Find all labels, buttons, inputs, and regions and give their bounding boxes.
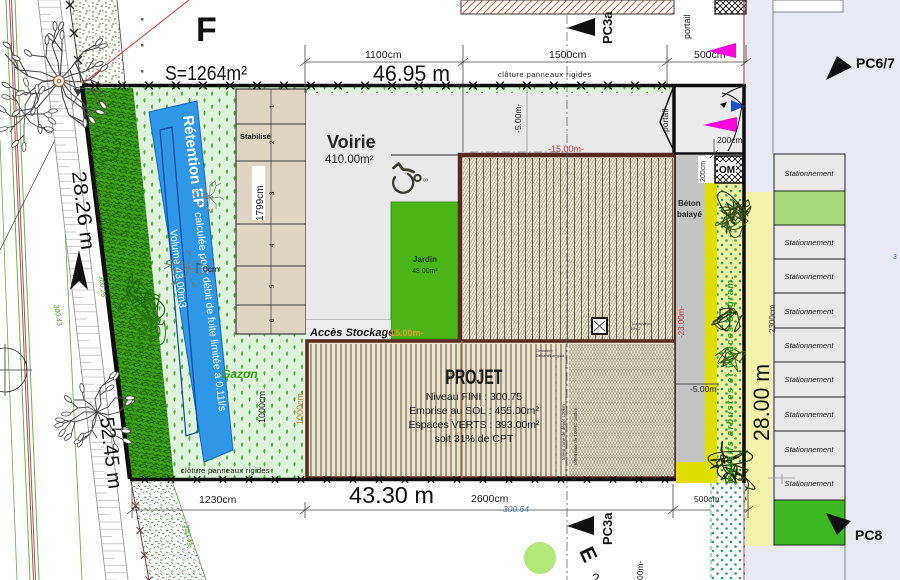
svg-text:Espaces VERTS : 393.00m²: Espaces VERTS : 393.00m²: [408, 419, 540, 431]
svg-text:Stabilisé: Stabilisé: [240, 132, 271, 141]
svg-text:Gazon: Gazon: [221, 367, 258, 381]
svg-text:Stationnement: Stationnement: [785, 169, 835, 178]
svg-text:1000cm: 1000cm: [257, 391, 267, 423]
svg-text:PC3a: PC3a: [600, 11, 615, 44]
svg-text:PC6/7: PC6/7: [856, 55, 895, 71]
svg-text:3: 3: [893, 254, 897, 261]
svg-text:300.64: 300.64: [503, 504, 529, 514]
svg-text:Stationnement: Stationnement: [785, 375, 835, 384]
svg-text:totem haie de 100HC 150km: totem haie de 100HC 150km: [573, 407, 578, 465]
svg-text:Stationnement: Stationnement: [785, 307, 835, 316]
svg-text:-15.00m-: -15.00m-: [387, 328, 424, 338]
svg-text:totem zone de dépôt 120km: totem zone de dépôt 120km: [561, 404, 566, 460]
svg-text:2300cm: 2300cm: [768, 304, 777, 333]
svg-text:-15.00m-: -15.00m-: [548, 144, 584, 154]
svg-text:Niveau FINI : 300.75: Niveau FINI : 300.75: [426, 391, 522, 403]
svg-text:Jardin: Jardin: [413, 255, 437, 264]
svg-text:Stationnement: Stationnement: [785, 272, 835, 281]
svg-text:PC8: PC8: [855, 527, 882, 543]
svg-text:PROJET: PROJET: [446, 366, 503, 389]
svg-text:Stationnement: Stationnement: [785, 410, 835, 419]
svg-text:200cm: 200cm: [717, 135, 743, 145]
svg-text:1799cm: 1799cm: [255, 185, 266, 221]
svg-text:-5.00m-: -5.00m-: [513, 104, 523, 133]
svg-text:Béton: Béton: [678, 199, 701, 208]
svg-text:1100cm: 1100cm: [365, 49, 402, 61]
svg-text:28.00 m: 28.00 m: [749, 364, 774, 441]
svg-text:1500cm: 1500cm: [549, 49, 587, 61]
svg-text:∞: ∞: [423, 177, 428, 184]
svg-text:00m-: 00m-: [635, 560, 645, 580]
svg-text:balayé: balayé: [677, 210, 702, 219]
svg-text:Accès Stockage: Accès Stockage: [309, 327, 394, 339]
svg-text:PC3a: PC3a: [600, 512, 615, 545]
svg-text:Stationnement: Stationnement: [785, 445, 835, 454]
svg-text:clôture panneaux rigides: clôture panneaux rigides: [181, 466, 270, 475]
svg-text:S=1264m²: S=1264m²: [165, 63, 247, 85]
svg-text:Stationnement: Stationnement: [785, 479, 835, 488]
svg-text:portail: portail: [660, 109, 670, 132]
svg-text:OM: OM: [719, 165, 735, 176]
svg-text:Stationnement: Stationnement: [785, 238, 835, 247]
svg-text:410.00m²: 410.00m²: [325, 154, 374, 166]
svg-text:0cm: 0cm: [203, 264, 219, 274]
svg-text:1230cm: 1230cm: [199, 494, 237, 506]
svg-text:40HC: 40HC: [630, 326, 640, 331]
svg-text:Décant/Lampad.: Décant/Lampad.: [536, 353, 565, 358]
svg-text:500cm: 500cm: [694, 494, 720, 504]
svg-text:46.95 m: 46.95 m: [373, 61, 450, 86]
svg-text:-5.00m-: -5.00m-: [690, 384, 719, 394]
svg-text:Emprise au SOL : 455.00m²: Emprise au SOL : 455.00m²: [409, 405, 539, 417]
svg-text:43.30 m: 43.30 m: [349, 482, 434, 508]
svg-text:200cm: 200cm: [700, 161, 707, 182]
svg-text:soit 31% de CPT: soit 31% de CPT: [435, 433, 514, 445]
svg-text:48.00m²: 48.00m²: [412, 268, 438, 275]
svg-text:2: 2: [592, 570, 600, 580]
svg-text:F: F: [196, 11, 217, 49]
svg-text:-23.00m-: -23.00m-: [677, 306, 686, 338]
svg-text:Stationnement: Stationnement: [785, 341, 835, 350]
svg-text:clôture panneaux rigides: clôture panneaux rigides: [498, 70, 592, 79]
svg-text:portail: portail: [682, 14, 692, 39]
svg-text:Voirie: Voirie: [327, 132, 376, 152]
svg-text:1000cm: 1000cm: [295, 393, 305, 425]
